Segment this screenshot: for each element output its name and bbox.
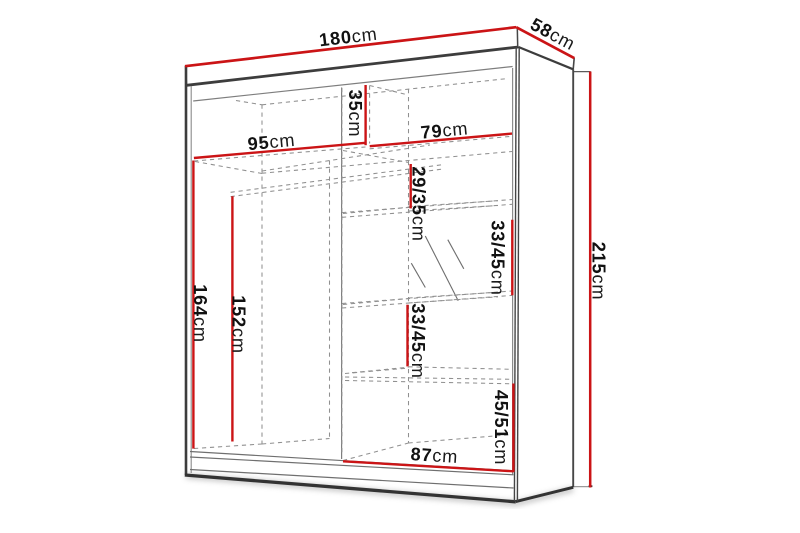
svg-text:33/45cm: 33/45cm <box>408 303 428 378</box>
svg-text:45/51cm: 45/51cm <box>491 390 511 465</box>
svg-text:215cm: 215cm <box>589 242 609 301</box>
svg-text:33/45cm: 33/45cm <box>488 220 508 295</box>
svg-text:35cm: 35cm <box>345 90 365 138</box>
svg-text:152cm: 152cm <box>229 295 249 354</box>
svg-text:29/35cm: 29/35cm <box>409 166 429 241</box>
svg-text:87cm: 87cm <box>410 444 459 467</box>
svg-text:164cm: 164cm <box>190 284 210 343</box>
